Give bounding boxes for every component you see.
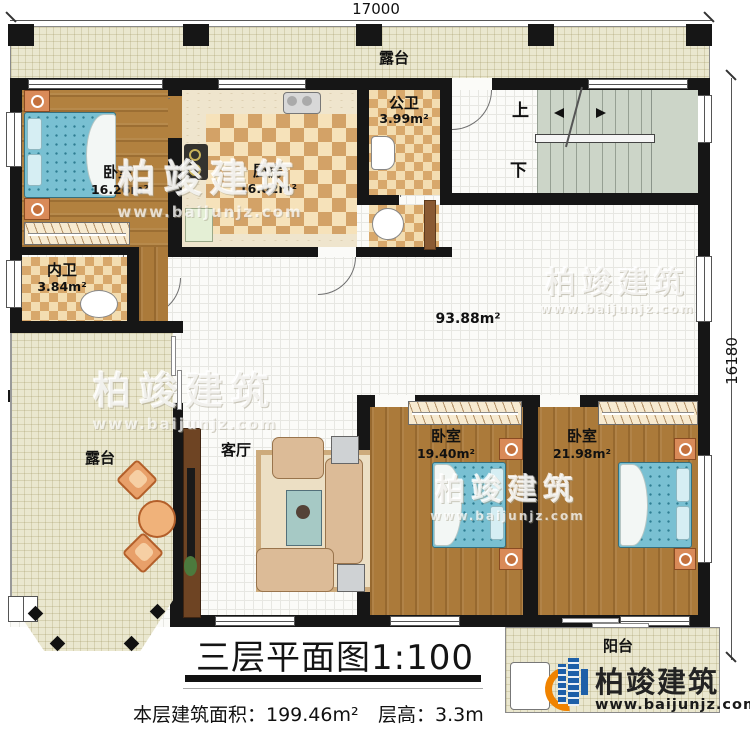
window [696,95,712,143]
floor-height-stat: 层高：3.3m [378,700,508,727]
pillow [27,118,42,150]
title-underline-thin [183,688,483,689]
kitchen-board [185,208,213,242]
bath-public-area: 3.99m² [372,112,436,126]
kitchen-sink-bowl [302,96,312,106]
sliding-door [592,623,649,628]
brand-name: 柏竣建筑 [595,659,737,701]
pillow [676,506,690,540]
side-table [337,564,365,592]
wall-kitchen-bath [357,78,369,205]
side-table [331,436,359,464]
column [356,24,382,46]
wardrobe [24,222,130,245]
stair-arrow [554,108,564,118]
bedroom-s2-label: 卧室 [546,428,618,445]
dimension-right-value: 16180 [723,331,741,391]
stair-down-label: 下 [510,156,527,181]
wardrobe-rail [28,233,126,236]
nightstand [499,548,523,570]
balcony-label: 阳台 [592,638,644,655]
window [28,79,163,89]
window [588,79,688,89]
floor-area-stat: 本层建筑面积：199.46m² [133,700,373,727]
stove-burner [189,149,201,161]
door-leaf [424,200,436,250]
nightstand [674,438,696,460]
pillow [676,468,690,502]
door-opening [168,96,182,138]
bedroom-nw-label: 卧室 [86,164,150,181]
wall-bathpublic-right [440,78,452,205]
wall-terrace-sw-top [10,321,183,333]
bedroom-s1-area: 19.40m² [406,447,486,461]
plan-title: 三层平面图1:100 [170,630,500,679]
sofa [256,548,334,592]
kitchen-label: 厨房 [238,163,298,180]
terrace-sw-label: 露台 [72,450,128,467]
brand-url: www.baijunjz.com [595,697,737,713]
window [215,616,295,626]
window [6,260,22,308]
bedroom-nw-area: 16.26m² [82,183,158,197]
hall-area-label: 93.88m² [428,312,508,327]
stove-burner [189,164,201,176]
sink [80,290,118,318]
door-opening [318,247,356,257]
title-underline-thick [185,675,481,682]
nightstand [499,438,523,460]
logo-swoosh-icon [536,658,598,720]
bath-private-area: 3.84m² [30,280,94,294]
sofa [272,437,324,479]
nightstand [674,548,696,570]
terrace-top-label: 露台 [366,50,422,67]
kitchen-sink-bowl [287,96,297,106]
table-decor [296,505,310,519]
window [218,79,306,89]
window [696,256,712,322]
kitchen-area: 16.02m² [232,182,304,196]
stair-arrow [596,108,606,118]
bedroom-s2-area: 21.98m² [542,447,622,461]
column [686,24,712,46]
corridor-floor [139,247,168,321]
dimension-top-value: 17000 [340,0,412,18]
logo-building-icon [568,658,579,706]
wall-kitchen-bottom [168,247,318,257]
parapet-line [10,333,12,601]
wall-stairs-bottom [440,193,710,205]
pillow [490,468,504,502]
toilet [371,136,395,170]
bath-private-label: 内卫 [36,262,88,279]
pillow [490,506,504,540]
door-opening [452,78,492,90]
logo-building-icon [581,669,588,695]
stair-up-label: 上 [512,96,529,121]
window [390,616,460,626]
wall-bathprivate-right [127,247,139,333]
column [528,24,554,46]
door-opening [540,395,580,407]
wardrobe [408,401,522,425]
sliding-door [171,336,176,376]
wall-bedrooms-divider [523,395,538,627]
bath-public-label: 公卫 [372,95,436,112]
wall-bathpublic-partial [369,195,399,205]
wardrobe-rail [602,412,694,415]
dimension-top-line [10,20,713,21]
plant [184,556,197,576]
brand-logo: 柏竣建筑 www.baijunjz.com [543,655,738,717]
nightstand [24,90,50,112]
wardrobe [598,401,698,425]
wardrobe-rail [412,412,517,415]
window [696,455,712,563]
basin [372,208,404,240]
pillow [27,154,42,186]
wall-bath-bottom [356,247,452,257]
stair-handrail [535,134,655,143]
nightstand [24,198,50,220]
column [183,24,209,46]
sliding-door [177,370,182,410]
floor-plan-canvas: 17000 16180 露台 [0,0,750,729]
bedroom-s1-label: 卧室 [410,428,482,445]
column [8,24,34,46]
logo-building-icon [558,664,566,704]
window [6,112,22,167]
